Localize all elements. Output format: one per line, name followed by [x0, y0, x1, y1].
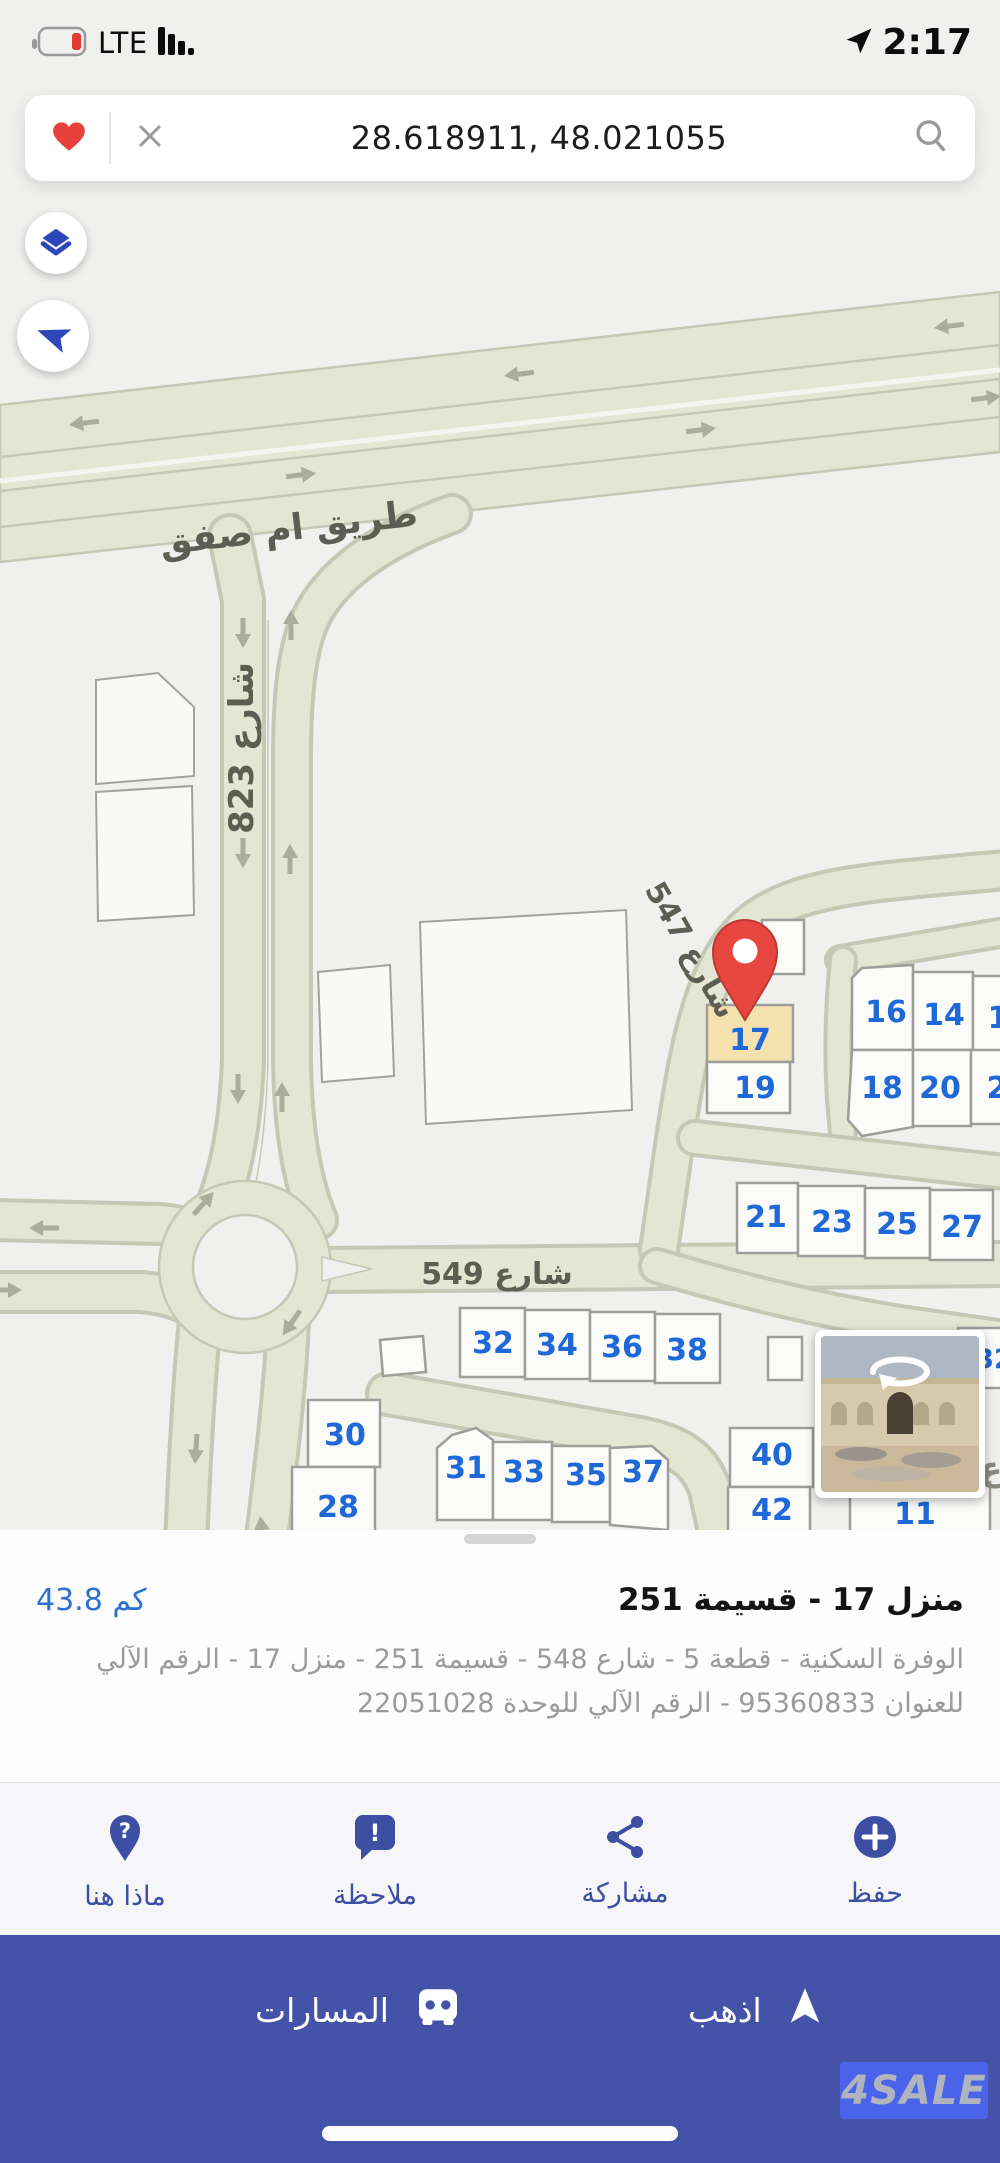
svg-text:35: 35: [565, 1458, 607, 1493]
favorite-heart-icon[interactable]: [51, 120, 87, 157]
street-823-road: [211, 514, 452, 1220]
road-label-823: شارع 823: [222, 662, 262, 834]
svg-text:17: 17: [729, 1023, 771, 1058]
go-label: اذهب: [688, 1991, 762, 2030]
note-bubble-icon: !: [351, 1812, 399, 1866]
svg-text:21: 21: [745, 1200, 787, 1235]
svg-text:40: 40: [751, 1438, 793, 1473]
svg-text:32: 32: [472, 1326, 514, 1361]
divider: [109, 112, 111, 164]
svg-text:30: 30: [324, 1418, 366, 1453]
signal-bars-icon: [158, 25, 200, 61]
share-icon: [602, 1814, 648, 1864]
what-is-here-label: ماذا هنا: [84, 1881, 165, 1912]
svg-text:28: 28: [317, 1490, 359, 1525]
svg-text:23: 23: [811, 1205, 853, 1240]
clock: 2:17: [882, 22, 972, 63]
svg-text:?: ?: [119, 1819, 131, 1843]
app-screen: LTE 2:17: [0, 0, 1000, 2163]
svg-text:34: 34: [536, 1328, 578, 1363]
home-indicator[interactable]: [322, 2126, 678, 2141]
map-canvas[interactable]: 17 19 16 14 1 18 20 2 21 23 25 27 32 34 …: [0, 180, 1000, 1540]
street-view-thumbnail[interactable]: [815, 1330, 985, 1498]
navigation-bar: المسارات اذهب 4SALE: [0, 1935, 1000, 2163]
svg-text:20: 20: [919, 1071, 961, 1106]
svg-text:25: 25: [876, 1207, 918, 1242]
go-arrow-icon: [788, 1987, 822, 2033]
pin-question-icon: ?: [102, 1811, 148, 1867]
search-icon[interactable]: [913, 118, 949, 158]
carrier-label: LTE: [98, 26, 148, 60]
svg-text:33: 33: [503, 1455, 545, 1490]
svg-text:14: 14: [923, 998, 965, 1033]
note-button[interactable]: ! ملاحظة: [250, 1783, 500, 1935]
building-outlines: [96, 673, 632, 1124]
share-button[interactable]: مشاركة: [500, 1783, 750, 1935]
layers-icon: [34, 221, 78, 265]
drag-handle[interactable]: [464, 1534, 536, 1544]
svg-text:31: 31: [445, 1451, 487, 1486]
svg-text:38: 38: [666, 1333, 708, 1368]
highway-road: [0, 292, 1000, 562]
save-button[interactable]: حفظ: [750, 1783, 1000, 1935]
go-button[interactable]: اذهب: [688, 1987, 822, 2033]
place-description: الوفرة السكنية - قطعة 5 - شارع 548 - قسي…: [0, 1618, 1000, 1725]
search-input[interactable]: 28.618911, 48.021055: [165, 119, 913, 157]
place-details-sheet: منزل 17 - قسيمة 251 43.8 كم الوفرة السكن…: [0, 1530, 1000, 1935]
svg-text:2: 2: [987, 1071, 1000, 1106]
svg-text:36: 36: [601, 1330, 643, 1365]
location-arrow-icon: [844, 26, 874, 60]
svg-text:11: 11: [894, 1497, 936, 1532]
search-bar[interactable]: 28.618911, 48.021055: [25, 95, 975, 181]
svg-text:19: 19: [734, 1071, 776, 1106]
note-label: ملاحظة: [333, 1880, 417, 1911]
svg-text:!: !: [370, 1819, 381, 1847]
road-label-549: شارع 549: [421, 1257, 573, 1292]
svg-text:18: 18: [861, 1071, 903, 1106]
share-label: مشاركة: [581, 1878, 668, 1909]
battery-icon: [30, 24, 88, 62]
svg-text:42: 42: [751, 1493, 793, 1528]
svg-text:27: 27: [941, 1210, 983, 1245]
save-label: حفظ: [847, 1878, 903, 1909]
plus-circle-icon: [852, 1814, 898, 1864]
distance-value: 43.8 كم: [36, 1583, 147, 1618]
clear-search-icon[interactable]: [135, 121, 165, 155]
layers-button[interactable]: [25, 212, 87, 274]
routes-label: المسارات: [255, 1991, 389, 2030]
svg-text:1: 1: [988, 1001, 1000, 1036]
car-icon: [415, 1987, 461, 2033]
place-title: منزل 17 - قسيمة 251: [618, 1582, 964, 1618]
compass-button[interactable]: [17, 300, 89, 372]
watermark-badge: 4SALE: [840, 2062, 988, 2119]
svg-text:16: 16: [865, 995, 907, 1030]
navigation-arrow-icon: [33, 316, 73, 356]
what-is-here-button[interactable]: ? ماذا هنا: [0, 1783, 250, 1935]
action-row: ? ماذا هنا ! ملاحظة: [0, 1782, 1000, 1935]
svg-text:37: 37: [622, 1455, 664, 1490]
routes-button[interactable]: المسارات: [255, 1987, 461, 2033]
status-bar: LTE 2:17: [0, 0, 1000, 88]
